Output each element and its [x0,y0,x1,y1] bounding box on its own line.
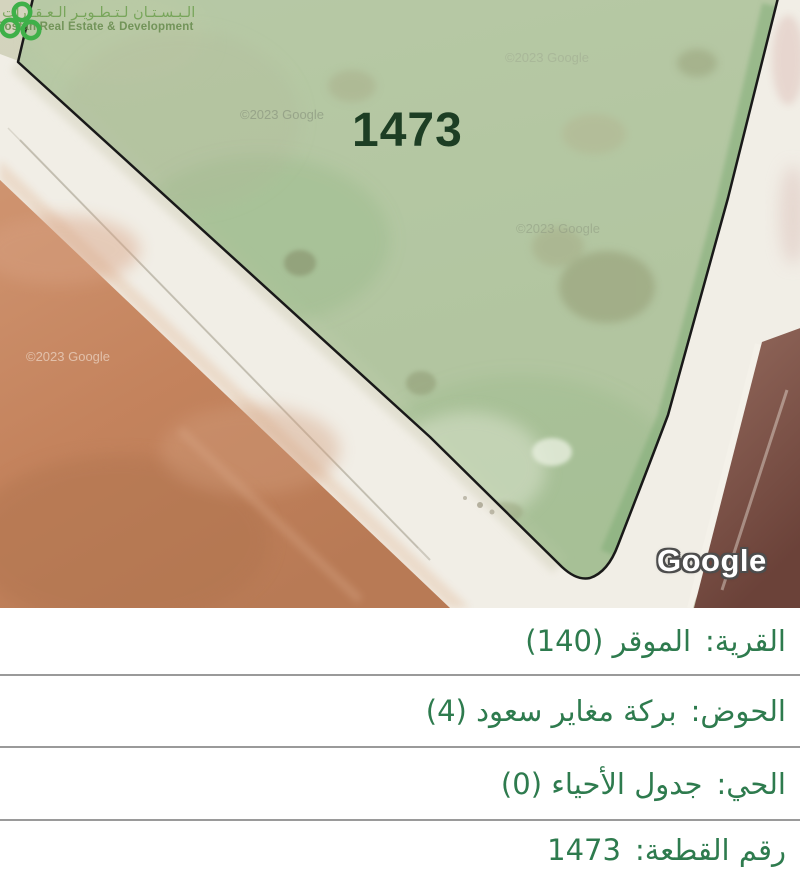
detail-value-village: الموقر (140) [525,624,691,658]
detail-row-neighborhood: الحي: جدول الأحياء (0) [0,748,800,821]
detail-label-village: القرية: [705,624,786,658]
map-copyright-watermark: ©2023 Google [26,349,110,364]
map-terrain-graphic [0,0,800,608]
map-copyright-watermark: ©2023 Google [240,107,324,122]
detail-row-basin: الحوض: بركة مغاير سعود (4) [0,676,800,748]
map-copyright-watermark: ©2023 Google [505,50,589,65]
detail-value-neighborhood: جدول الأحياء (0) [501,767,703,801]
detail-value-basin: بركة مغاير سعود (4) [426,694,677,728]
detail-value-plot-number: 1473 [547,833,621,867]
brand-clover-icon [0,0,48,44]
detail-label-basin: الحوض: [691,694,786,728]
listing-screen: الـبـسـتـان لـتـطـويـر الـعـقـارات Bosta… [0,0,800,878]
parcel-number-label: 1473 [352,103,463,158]
map-copyright-watermark: ©2023 Google [516,221,600,236]
detail-row-plot-number: رقم القطعة: 1473 [0,821,800,878]
google-logo: Google [657,543,767,579]
detail-label-plot-number: رقم القطعة: [635,833,786,867]
parcel-details-list: القرية: الموقر (140) الحوض: بركة مغاير س… [0,608,800,878]
detail-row-village: القرية: الموقر (140) [0,608,800,676]
map-satellite-view[interactable]: الـبـسـتـان لـتـطـويـر الـعـقـارات Bosta… [0,0,800,608]
detail-label-neighborhood: الحي: [716,767,786,801]
